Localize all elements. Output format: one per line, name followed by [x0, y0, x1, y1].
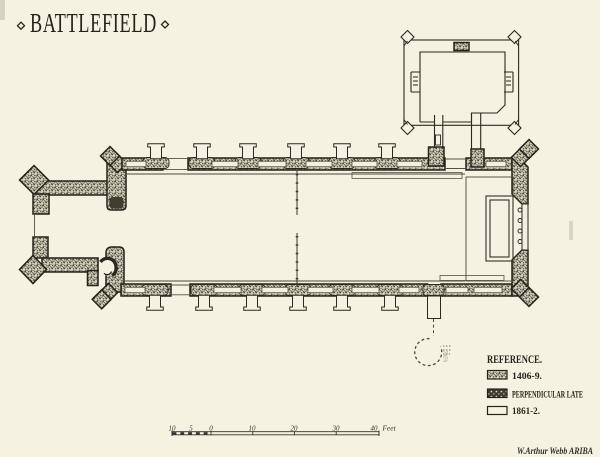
svg-text:1406-9.: 1406-9. [512, 372, 542, 382]
svg-text:W.Arthur Webb ARIBA: W.Arthur Webb ARIBA [517, 447, 593, 457]
svg-text:20: 20 [291, 425, 299, 433]
svg-text:PERPENDICULAR LATE: PERPENDICULAR LATE [512, 390, 583, 400]
svg-text:5: 5 [189, 425, 193, 433]
svg-text:BATTLEFIELD: BATTLEFIELD [30, 8, 157, 38]
svg-text:40: 40 [371, 425, 379, 433]
svg-text:0: 0 [209, 425, 213, 433]
svg-text:REFERENCE.: REFERENCE. [487, 354, 542, 366]
svg-text:10: 10 [249, 425, 257, 433]
svg-text:10: 10 [169, 425, 177, 433]
svg-text:1861-2.: 1861-2. [512, 407, 540, 417]
svg-text:Feet: Feet [381, 424, 396, 433]
svg-text:30: 30 [332, 425, 341, 433]
